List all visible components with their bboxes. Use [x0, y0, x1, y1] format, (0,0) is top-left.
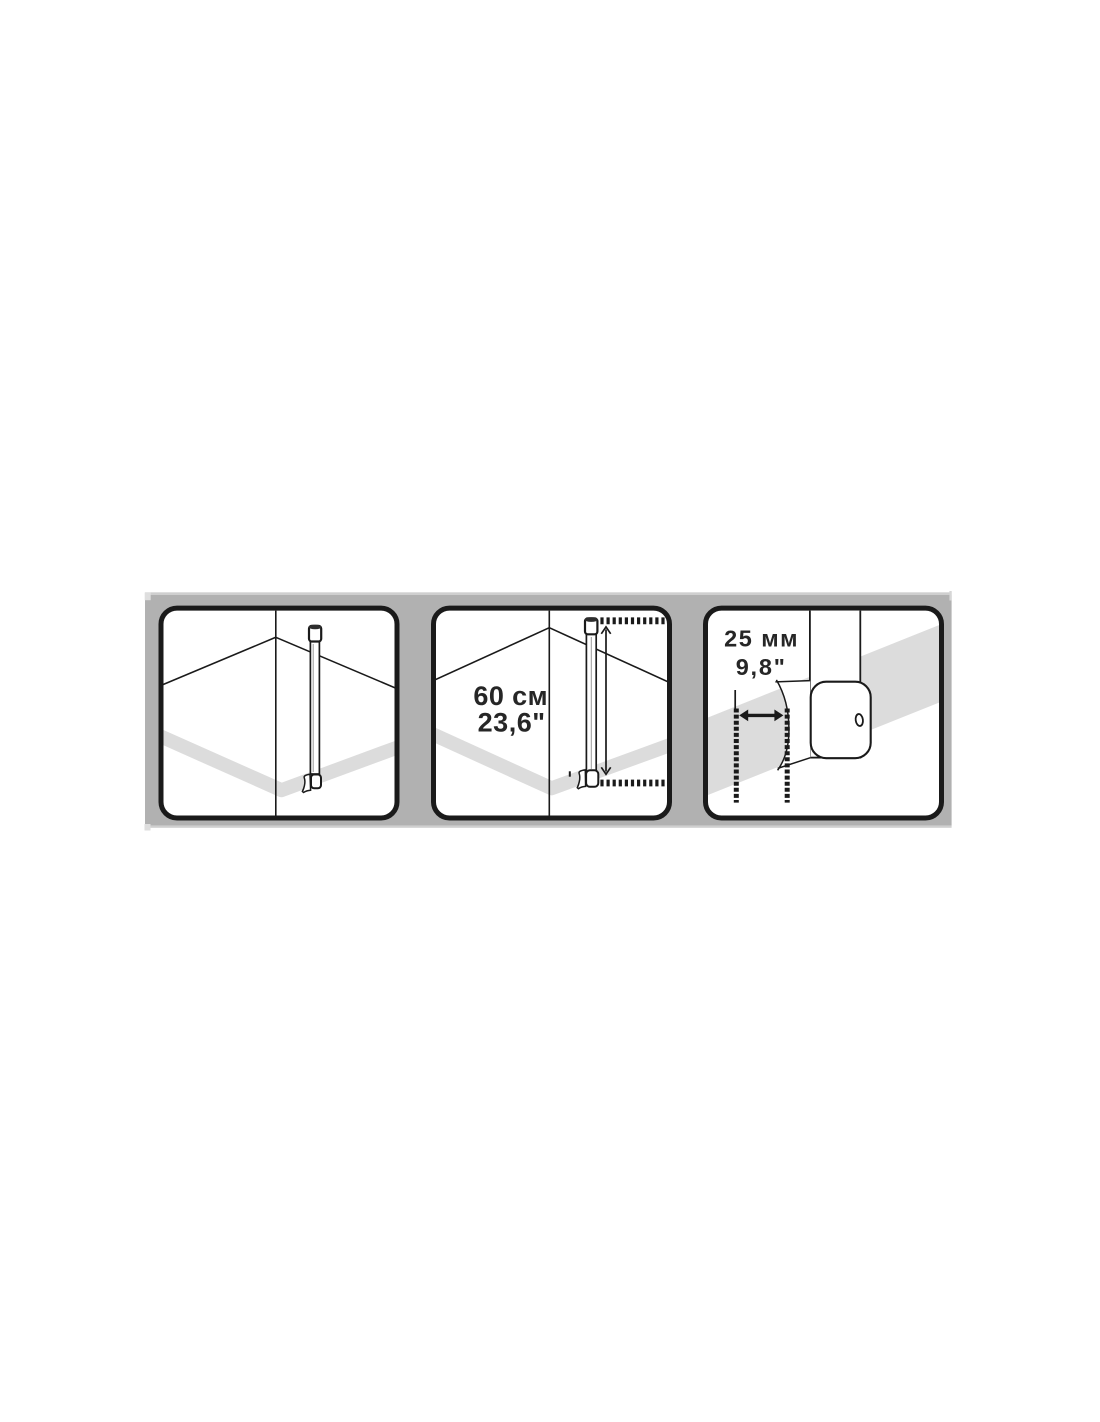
svg-text:60 см: 60 см — [473, 681, 548, 711]
svg-text:9,8": 9,8" — [736, 654, 787, 680]
svg-text:25 мм: 25 мм — [724, 626, 799, 652]
svg-text:23,6": 23,6" — [478, 708, 546, 738]
